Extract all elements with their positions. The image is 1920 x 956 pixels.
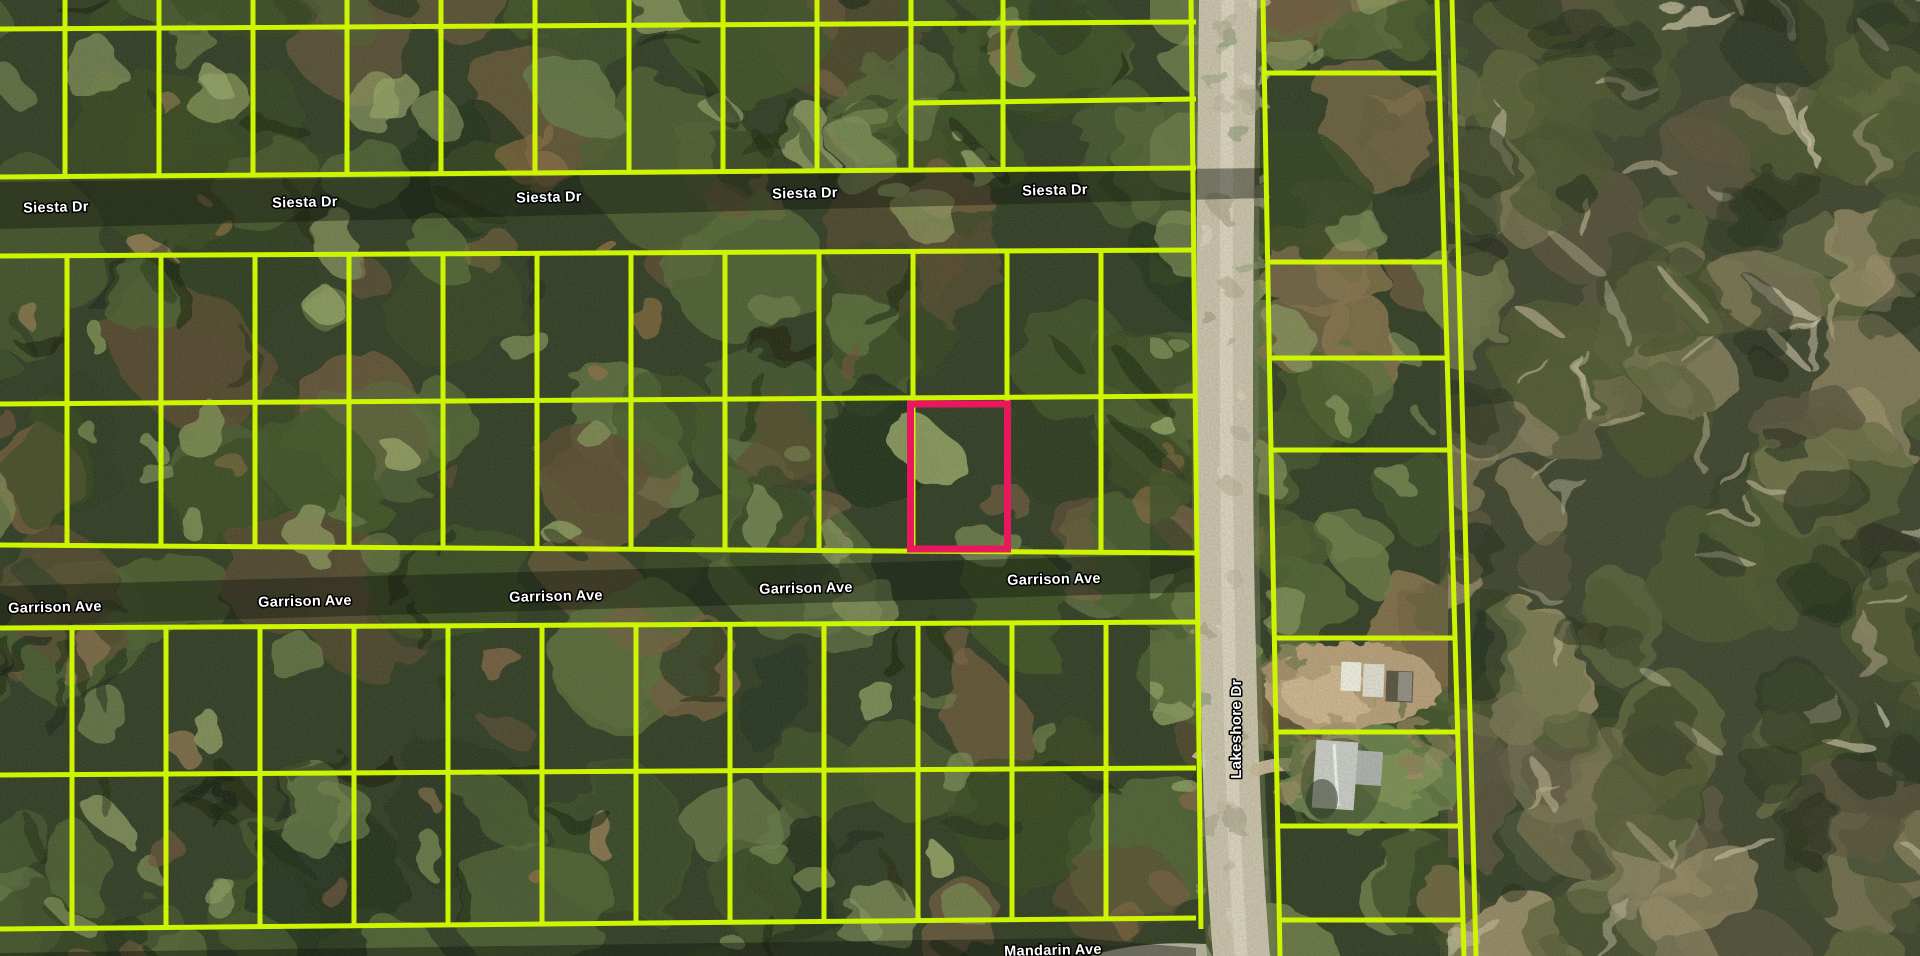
street-label-mandarin-ave: Mandarin Ave <box>1004 942 1102 956</box>
street-label-garrison-ave: Garrison Ave <box>8 599 102 617</box>
street-label-garrison-ave: Garrison Ave <box>258 593 352 611</box>
street-label-siesta-dr: Siesta Dr <box>272 194 338 211</box>
street-label-siesta-dr: Siesta Dr <box>516 189 582 206</box>
street-label-garrison-ave: Garrison Ave <box>509 588 603 606</box>
aerial-map: Siesta DrSiesta DrSiesta DrSiesta DrSies… <box>0 0 1920 956</box>
street-label-garrison-ave: Garrison Ave <box>759 580 853 598</box>
street-label-siesta-dr: Siesta Dr <box>1022 182 1088 199</box>
map-viewport[interactable]: Siesta DrSiesta DrSiesta DrSiesta DrSies… <box>0 0 1920 956</box>
image-grain <box>0 0 1920 956</box>
street-label-siesta-dr: Siesta Dr <box>772 185 838 202</box>
street-label-lakeshore-dr: Lakeshore Dr <box>1228 679 1245 778</box>
street-label-siesta-dr: Siesta Dr <box>23 199 89 216</box>
street-label-garrison-ave: Garrison Ave <box>1007 571 1101 589</box>
